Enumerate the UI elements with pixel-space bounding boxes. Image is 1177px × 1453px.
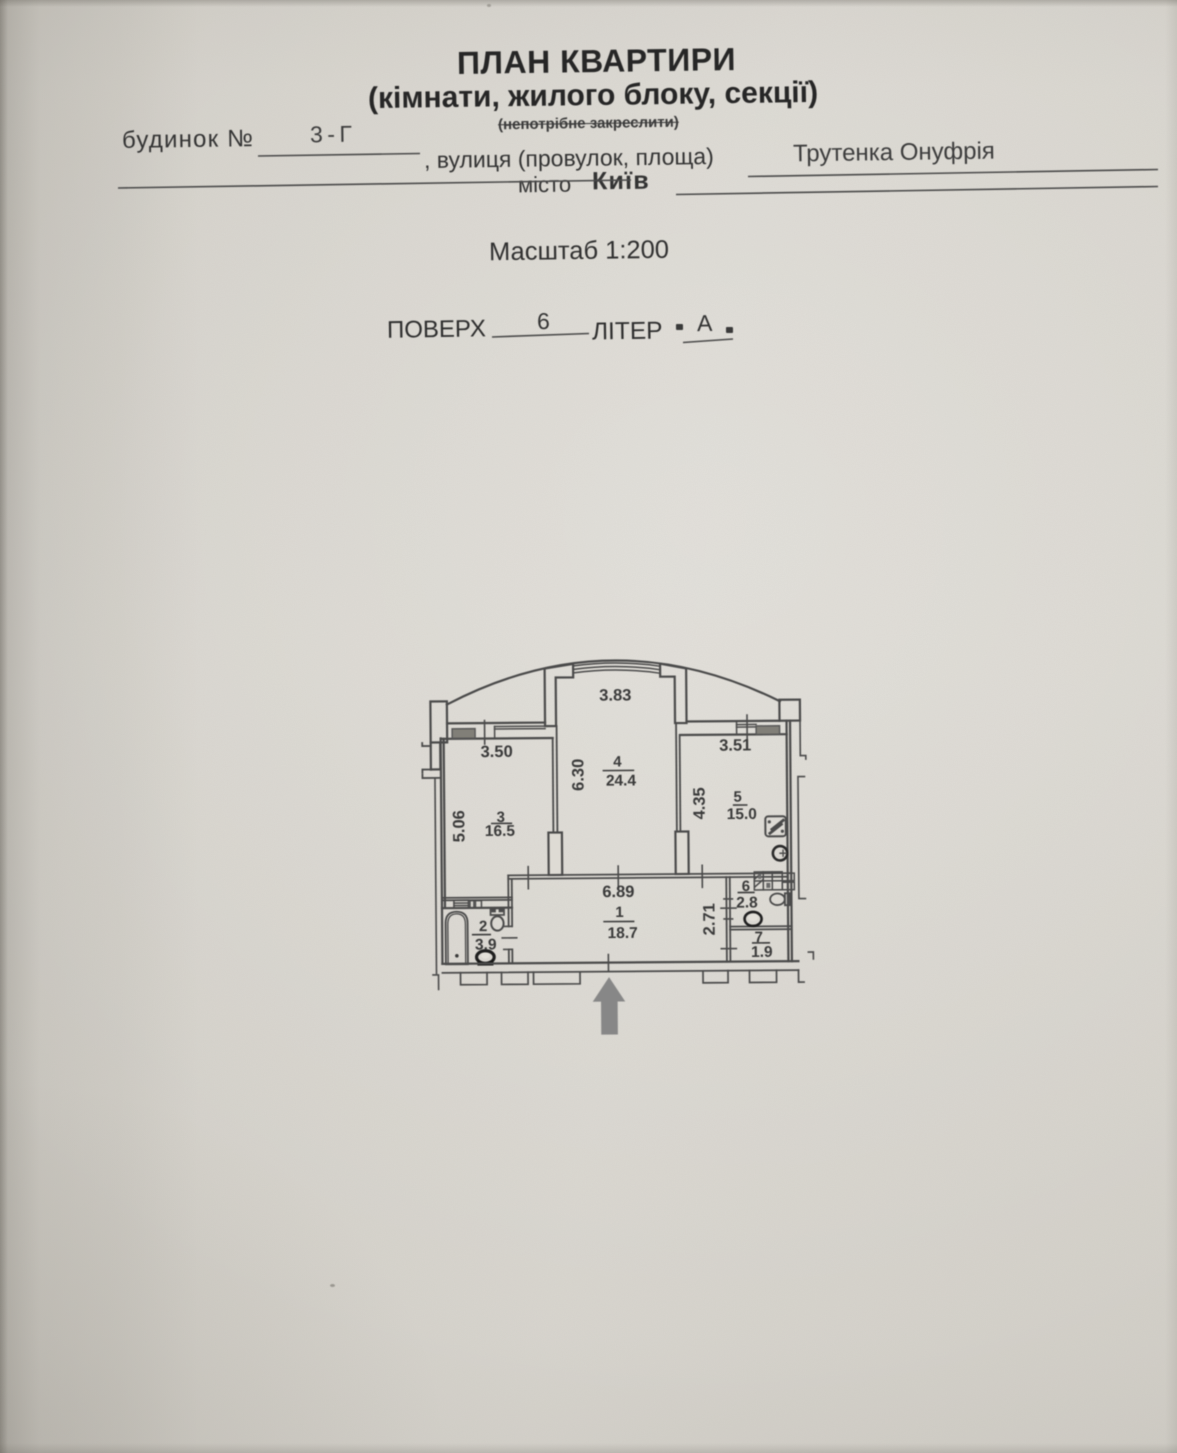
svg-text:24.4: 24.4	[606, 772, 637, 789]
svg-text:5: 5	[733, 789, 741, 806]
svg-text:5.06: 5.06	[450, 810, 468, 842]
svg-text:3.50: 3.50	[481, 743, 513, 761]
svg-text:16.5: 16.5	[485, 823, 516, 840]
svg-text:18.7: 18.7	[608, 925, 638, 942]
svg-text:3.51: 3.51	[719, 736, 751, 754]
svg-text:2.71: 2.71	[700, 903, 718, 935]
svg-text:15.0: 15.0	[727, 806, 757, 823]
svg-text:4.35: 4.35	[691, 787, 709, 819]
svg-text:1.9: 1.9	[751, 944, 773, 961]
svg-text:6.89: 6.89	[602, 883, 634, 901]
svg-text:1: 1	[615, 904, 623, 921]
svg-text:2: 2	[479, 918, 487, 935]
svg-text:3.83: 3.83	[599, 686, 631, 704]
svg-text:2.8: 2.8	[736, 894, 758, 911]
svg-text:6.30: 6.30	[569, 759, 587, 791]
svg-text:4: 4	[613, 753, 622, 770]
svg-text:3.9: 3.9	[475, 936, 497, 953]
